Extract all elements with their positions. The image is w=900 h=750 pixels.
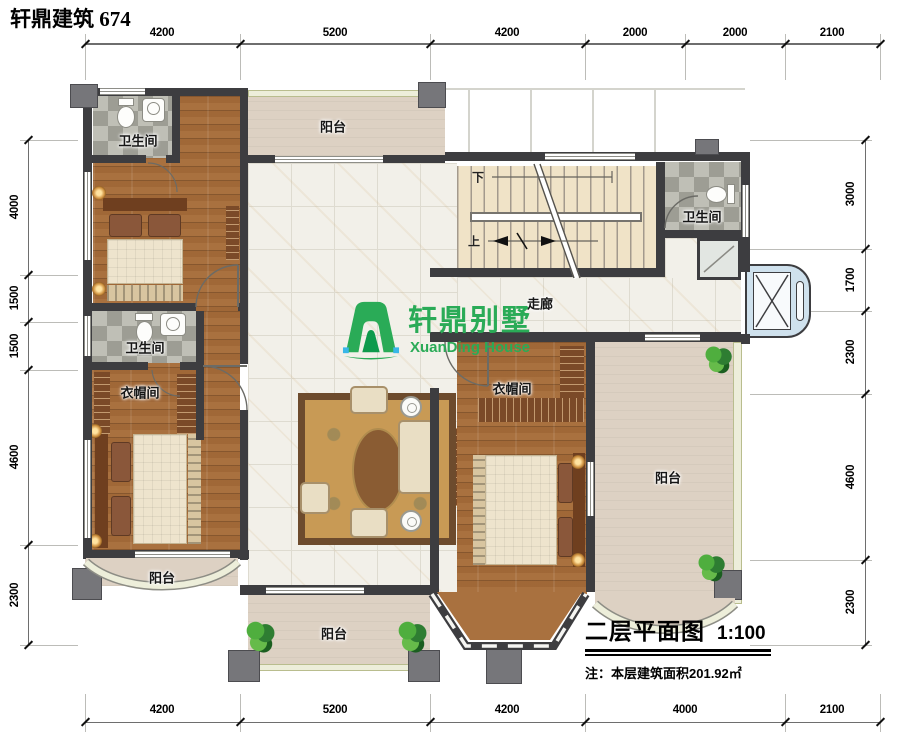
wall-bath2-south-a bbox=[83, 362, 148, 370]
plant-icon bbox=[703, 344, 733, 374]
dim-top-6: 2100 bbox=[820, 27, 844, 39]
dim-bottom-1: 4200 bbox=[150, 704, 174, 716]
title-underline bbox=[585, 649, 771, 656]
wall-bedroom2-east-a bbox=[240, 311, 248, 364]
window-mullion bbox=[530, 90, 532, 152]
pillar bbox=[418, 82, 446, 108]
sofa-right bbox=[398, 420, 434, 494]
wardrobe-right-2 bbox=[478, 398, 584, 422]
room-label-cloak-left: 衣帽间 bbox=[120, 383, 159, 402]
plant-icon bbox=[397, 618, 427, 654]
dim-left-2: 1500 bbox=[9, 286, 21, 310]
wall-stairs-south bbox=[430, 268, 665, 277]
window-mullion bbox=[654, 90, 656, 152]
logo-name-en: XuanDing House bbox=[410, 339, 530, 356]
wall-bedroom1-east bbox=[240, 88, 248, 311]
stairs-down-label: 下 bbox=[472, 169, 484, 186]
dim-line-top bbox=[85, 43, 880, 45]
dim-ext bbox=[240, 694, 241, 732]
balcony-top-floor bbox=[248, 97, 445, 156]
bed-right bbox=[473, 453, 585, 567]
dim-top-2: 5200 bbox=[323, 27, 347, 39]
dim-ext bbox=[585, 694, 586, 732]
dim-ext bbox=[785, 694, 786, 732]
dim-ext bbox=[880, 694, 881, 732]
wall-bath1-east bbox=[172, 96, 180, 163]
bed-bottomleft bbox=[95, 430, 201, 548]
dim-right-5: 2300 bbox=[845, 590, 857, 614]
balcony-center-parapet bbox=[250, 664, 428, 671]
pillar bbox=[408, 650, 440, 682]
plant-icon bbox=[696, 552, 726, 582]
dim-right-4: 4600 bbox=[845, 465, 857, 489]
room-label-bath-midleft: 卫生间 bbox=[125, 338, 164, 357]
window-mullion bbox=[468, 90, 470, 152]
dim-ext bbox=[750, 560, 872, 561]
toilet-tank bbox=[118, 98, 134, 106]
dim-ext bbox=[430, 694, 431, 732]
armchair-top bbox=[350, 386, 388, 414]
wall-hall-north-b bbox=[383, 155, 445, 163]
window-west-3 bbox=[84, 440, 91, 538]
bedside-lamp bbox=[571, 455, 585, 469]
ceiling-fan-icon bbox=[400, 396, 422, 418]
balcony-right-parapet bbox=[733, 342, 742, 604]
dim-left-1: 4000 bbox=[9, 195, 21, 219]
room-label-cloak-right: 衣帽间 bbox=[492, 379, 531, 398]
plant-icon bbox=[245, 618, 275, 654]
toilet-tank bbox=[727, 184, 735, 204]
room-label-balcony-top: 阳台 bbox=[320, 117, 346, 136]
dim-ext bbox=[85, 694, 86, 732]
plan-scale: 1:100 bbox=[717, 623, 766, 645]
dim-line-left bbox=[28, 140, 30, 645]
title-block: 二层平面图 1:100 注：本层建筑面积201.92㎡ bbox=[585, 612, 771, 682]
wall-bedroom2-east-b bbox=[240, 410, 248, 560]
pillar bbox=[70, 84, 98, 108]
window-west-2 bbox=[84, 316, 91, 356]
wall-bath3-west bbox=[656, 162, 665, 270]
window-west-1 bbox=[84, 172, 91, 260]
window-north-bath bbox=[100, 88, 145, 95]
window-hall-south bbox=[266, 587, 364, 594]
dim-top-1: 4200 bbox=[150, 27, 174, 39]
window-east-bath bbox=[742, 185, 749, 237]
bedside-lamp bbox=[571, 553, 585, 567]
toilet-tank bbox=[135, 313, 153, 321]
watermark-logo: 轩鼎别墅 XuanDing House bbox=[342, 297, 532, 366]
room-label-balcony-right: 阳台 bbox=[655, 468, 681, 487]
dim-ext bbox=[750, 394, 872, 395]
dim-bottom-4: 4000 bbox=[673, 704, 697, 716]
bedside-lamp bbox=[92, 282, 106, 296]
toilet-icon bbox=[706, 186, 727, 203]
dim-left-5: 2300 bbox=[9, 583, 21, 607]
dim-ext bbox=[750, 140, 872, 141]
stairs-up-label: 上 bbox=[468, 233, 480, 250]
pouf-left bbox=[300, 482, 330, 514]
dim-top-3: 4200 bbox=[495, 27, 519, 39]
window-rightwing-north bbox=[645, 334, 700, 341]
shaft-box bbox=[753, 272, 791, 330]
dim-line-bottom bbox=[85, 722, 880, 724]
wall-east-stub bbox=[741, 334, 750, 344]
window-seat bbox=[796, 281, 804, 321]
pillar bbox=[695, 139, 719, 155]
dim-right-2: 1700 bbox=[845, 268, 857, 292]
balcony-top-parapet bbox=[248, 90, 445, 97]
room-label-balcony-bc: 阳台 bbox=[321, 624, 347, 643]
plan-note: 注：本层建筑面积201.92㎡ bbox=[585, 663, 771, 682]
dim-right-1: 3000 bbox=[845, 182, 857, 206]
pillar bbox=[486, 644, 522, 684]
dresser-topleft bbox=[226, 206, 239, 260]
window-stairwell bbox=[545, 153, 635, 160]
window-hall-north bbox=[275, 156, 383, 163]
dim-bottom-3: 4200 bbox=[495, 704, 519, 716]
dim-right-3: 2300 bbox=[845, 340, 857, 364]
page-title: 轩鼎建筑 674 bbox=[10, 3, 131, 33]
wall-bedroom1-south-b bbox=[238, 303, 248, 311]
wall-cloak-left-east bbox=[196, 311, 204, 440]
room-label-bath-topright: 卫生间 bbox=[682, 207, 721, 226]
logo-house-icon bbox=[342, 297, 400, 366]
coffee-table bbox=[352, 428, 404, 512]
bedside-lamp bbox=[92, 186, 106, 200]
floor-plan-page: 轩鼎建筑 674 4200 5200 4200 2000 2000 2100 4… bbox=[0, 0, 900, 750]
dim-left-3: 1500 bbox=[9, 334, 21, 358]
shower-icon bbox=[697, 238, 741, 280]
wall-bath1-south-a bbox=[83, 155, 146, 163]
window-mullion bbox=[592, 90, 594, 152]
ceiling-fan-icon bbox=[400, 510, 422, 532]
armchair-bottom bbox=[350, 508, 388, 538]
dim-ext bbox=[750, 249, 872, 250]
stair-handrail bbox=[470, 212, 642, 222]
toilet-icon bbox=[117, 106, 135, 128]
window-bedroom2-south bbox=[135, 551, 230, 558]
sink-bowl bbox=[147, 102, 160, 115]
pillar bbox=[72, 568, 102, 600]
dim-top-4: 2000 bbox=[623, 27, 647, 39]
logo-name-cn: 轩鼎别墅 bbox=[408, 307, 532, 336]
wardrobe-left-2 bbox=[177, 374, 197, 434]
dim-bottom-5: 2100 bbox=[820, 704, 844, 716]
sink-bowl bbox=[166, 317, 180, 331]
plan-title: 二层平面图 bbox=[585, 612, 705, 646]
dim-top-5: 2000 bbox=[723, 27, 747, 39]
wall-bedroom1-south-a bbox=[83, 303, 196, 311]
roof-edge bbox=[445, 88, 745, 90]
dim-bottom-2: 5200 bbox=[323, 704, 347, 716]
bed-topleft bbox=[103, 198, 187, 304]
dim-left-4: 4600 bbox=[9, 445, 21, 469]
wall-bath1-south-b bbox=[166, 155, 180, 163]
wall-bath3-south bbox=[660, 230, 741, 238]
room-label-bath-topleft: 卫生间 bbox=[118, 131, 157, 150]
wall-bath2-south-b bbox=[180, 362, 204, 370]
wall-bedroomR-west bbox=[430, 388, 439, 594]
window-bedroomR-east bbox=[587, 462, 594, 516]
pillar bbox=[228, 650, 260, 682]
room-label-balcony-bl: 阳台 bbox=[149, 568, 175, 587]
